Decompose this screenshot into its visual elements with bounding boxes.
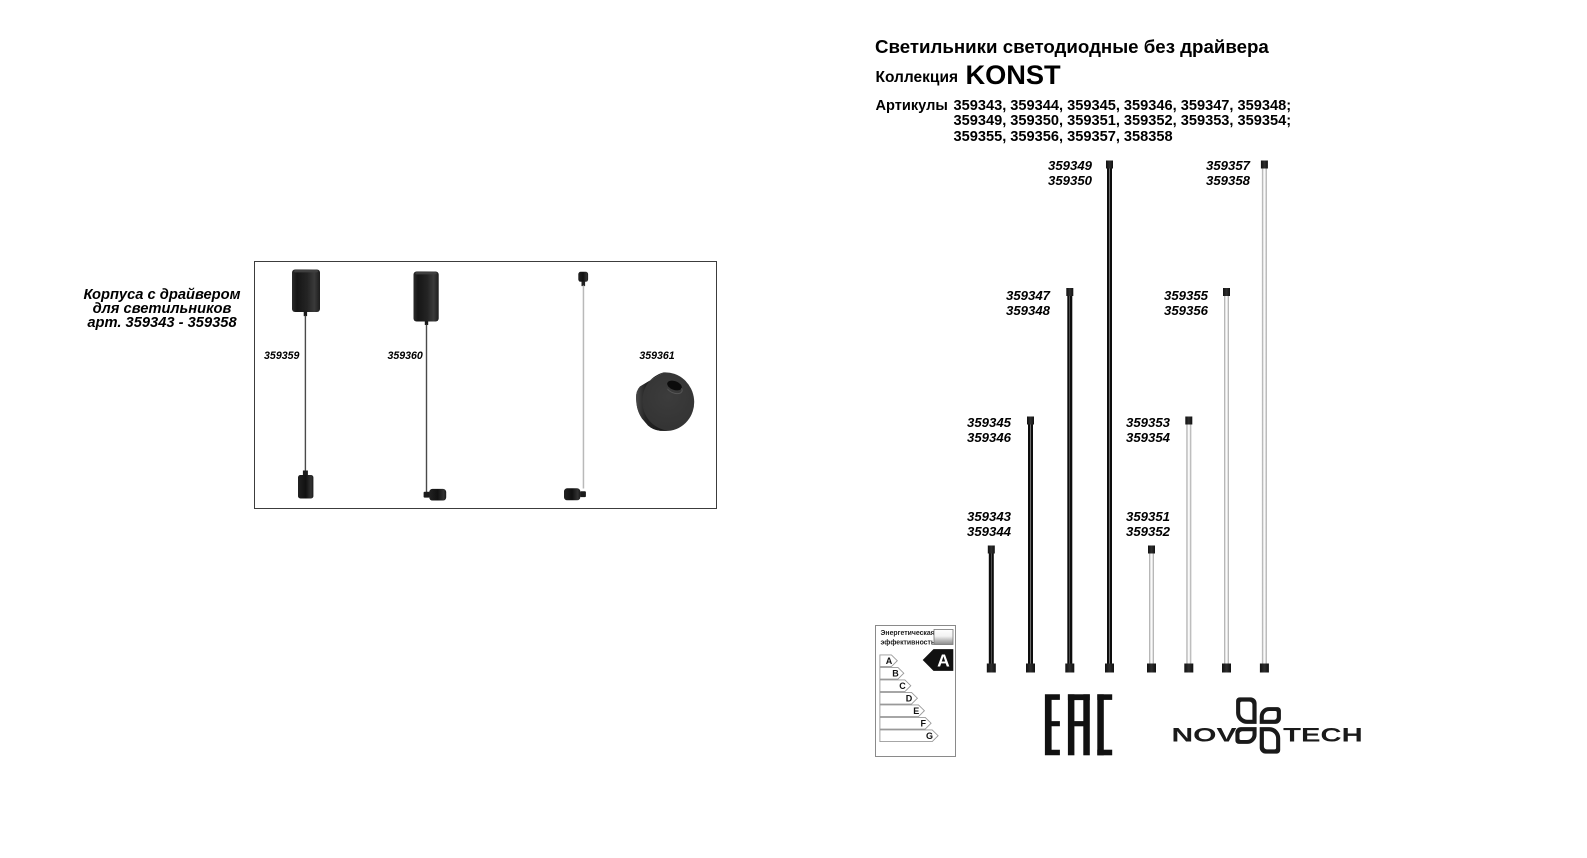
svg-text:NOV: NOV — [1172, 725, 1237, 747]
svg-text:D: D — [906, 693, 913, 703]
svg-text:C: C — [899, 681, 906, 691]
svg-text:G: G — [926, 731, 933, 741]
svg-text:E: E — [913, 706, 919, 716]
svg-text:TECH: TECH — [1283, 725, 1363, 747]
svg-text:A: A — [886, 656, 893, 666]
svg-text:F: F — [921, 718, 927, 728]
svg-text:Энергетическая: Энергетическая — [881, 630, 935, 637]
svg-text:A: A — [937, 651, 950, 671]
svg-text:эффективность: эффективность — [881, 639, 936, 646]
svg-text:B: B — [892, 668, 899, 678]
